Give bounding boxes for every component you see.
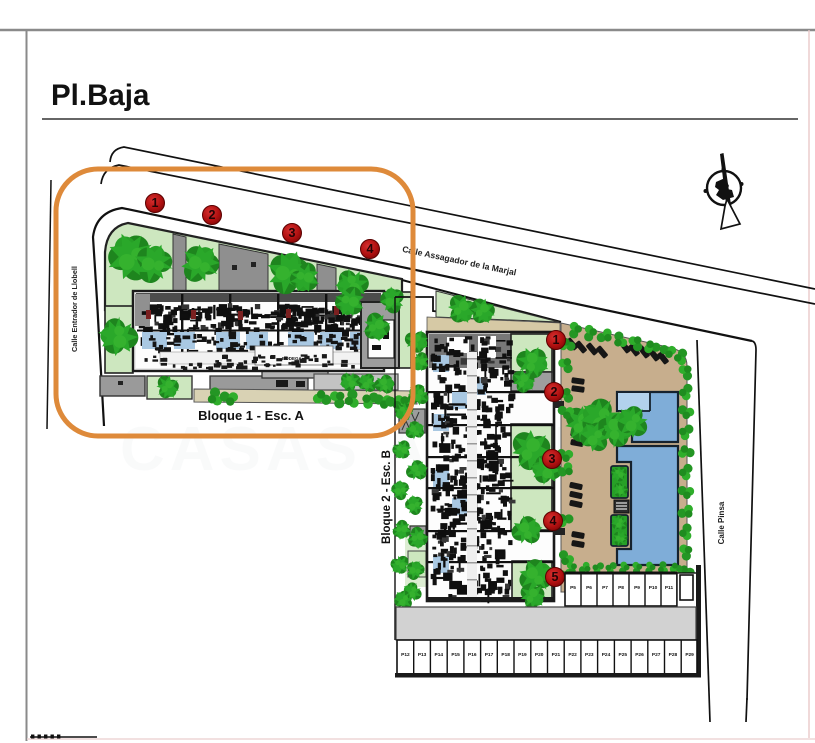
svg-text:P25: P25 xyxy=(619,652,628,658)
svg-text:P16: P16 xyxy=(468,652,477,658)
svg-text:P29: P29 xyxy=(685,652,694,658)
svg-text:P24: P24 xyxy=(602,652,611,658)
svg-text:P21: P21 xyxy=(552,652,561,658)
svg-text:P17: P17 xyxy=(485,652,494,658)
svg-text:2: 2 xyxy=(209,208,216,222)
svg-text:P27: P27 xyxy=(652,652,661,658)
svg-text:P9: P9 xyxy=(634,585,640,591)
svg-text:P12: P12 xyxy=(401,652,410,658)
svg-text:P11: P11 xyxy=(665,585,674,591)
svg-text:P10: P10 xyxy=(649,585,658,591)
svg-text:P5: P5 xyxy=(570,585,576,591)
svg-text:P7: P7 xyxy=(602,585,608,591)
svg-text:P19: P19 xyxy=(518,652,527,658)
svg-text:P13: P13 xyxy=(418,652,427,658)
svg-text:5: 5 xyxy=(552,570,559,584)
svg-text:2: 2 xyxy=(551,385,558,399)
svg-text:P20: P20 xyxy=(535,652,544,658)
svg-text:3: 3 xyxy=(289,226,296,240)
svg-text:P22: P22 xyxy=(568,652,577,658)
svg-text:P18: P18 xyxy=(501,652,510,658)
svg-text:1: 1 xyxy=(152,196,159,210)
svg-text:Calle Pinsa: Calle Pinsa xyxy=(717,501,726,544)
svg-text:Bloque 2 - Esc. B: Bloque 2 - Esc. B xyxy=(381,450,393,544)
svg-text:P14: P14 xyxy=(435,652,444,658)
svg-text:P26: P26 xyxy=(635,652,644,658)
svg-text:Pl.Baja: Pl.Baja xyxy=(51,79,150,112)
svg-text:3: 3 xyxy=(549,452,556,466)
svg-text:1: 1 xyxy=(553,333,560,347)
svg-text:P6: P6 xyxy=(586,585,592,591)
svg-text:P28: P28 xyxy=(669,652,678,658)
svg-text:P15: P15 xyxy=(451,652,460,658)
svg-text:4: 4 xyxy=(550,514,557,528)
svg-text:Calle Entrador de Llobell: Calle Entrador de Llobell xyxy=(70,266,79,352)
svg-text:4: 4 xyxy=(367,242,374,256)
svg-text:P8: P8 xyxy=(618,585,624,591)
svg-text:P23: P23 xyxy=(585,652,594,658)
svg-text:Bloque 1 - Esc. A: Bloque 1 - Esc. A xyxy=(198,408,304,423)
